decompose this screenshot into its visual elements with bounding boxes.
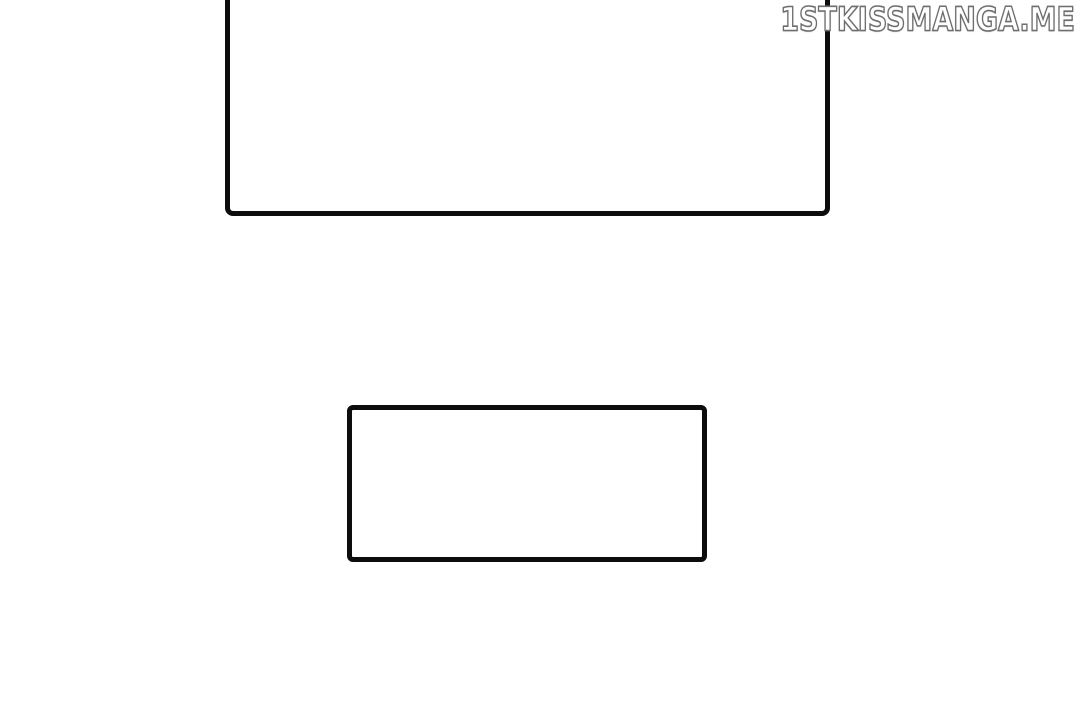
comic-panel-top xyxy=(225,0,830,216)
manga-page: 1STKISSMANGA.ME xyxy=(0,0,1080,712)
comic-panel-bottom xyxy=(347,405,707,562)
site-watermark: 1STKISSMANGA.ME xyxy=(780,1,1075,39)
